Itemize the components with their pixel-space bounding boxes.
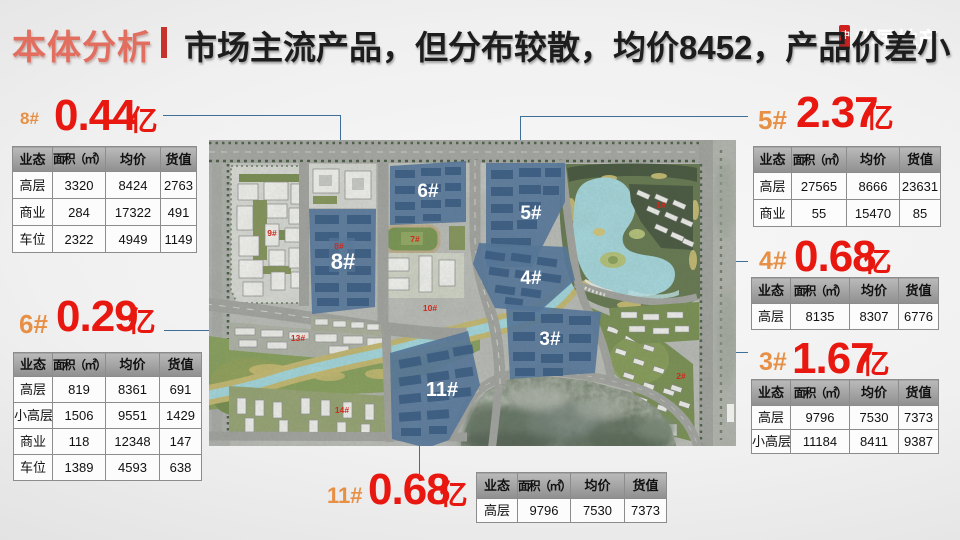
svg-text:1#: 1# bbox=[656, 200, 666, 210]
svg-text:11#: 11# bbox=[426, 379, 458, 401]
svg-text:8#: 8# bbox=[331, 249, 355, 274]
svg-text:3#: 3# bbox=[539, 329, 561, 350]
svg-text:10#: 10# bbox=[423, 303, 437, 313]
svg-text:9#: 9# bbox=[267, 228, 277, 238]
svg-text:8#: 8# bbox=[334, 241, 344, 251]
svg-text:7#: 7# bbox=[410, 234, 420, 244]
svg-text:2#: 2# bbox=[676, 371, 686, 381]
svg-text:13#: 13# bbox=[291, 333, 305, 343]
svg-text:6#: 6# bbox=[417, 181, 439, 202]
svg-text:14#: 14# bbox=[335, 405, 349, 415]
svg-text:4#: 4# bbox=[520, 268, 542, 289]
svg-text:5#: 5# bbox=[520, 203, 542, 224]
